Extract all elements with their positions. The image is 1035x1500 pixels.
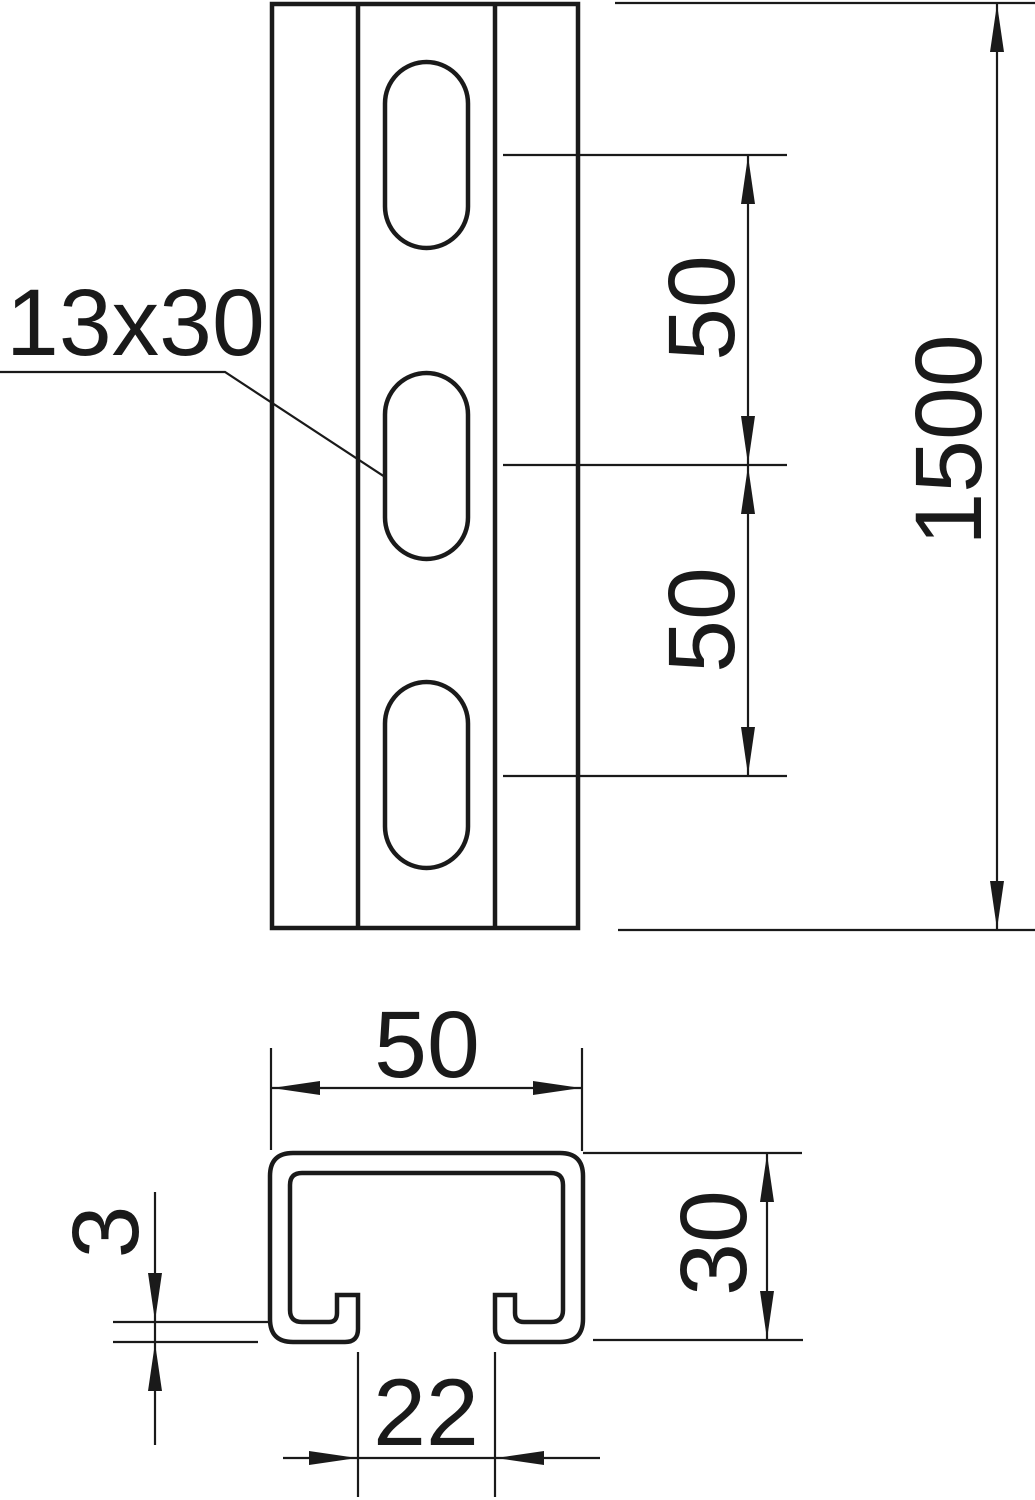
slot-hole-middle (385, 373, 468, 559)
height-label: 30 (661, 1190, 767, 1296)
arrowhead-down-icon (741, 727, 755, 775)
arrowhead-up-icon (741, 466, 755, 514)
arrowhead-up-icon (741, 156, 755, 204)
front-view: 13x30 50 50 1500 (0, 3, 1035, 930)
arrowhead-right-icon (533, 1081, 581, 1095)
arrowhead-left-icon (496, 1451, 544, 1465)
slot-size-label: 13x30 (6, 270, 265, 376)
slot-hole-bottom (385, 682, 468, 868)
arrowhead-right-icon (309, 1451, 357, 1465)
thickness-label: 3 (53, 1206, 159, 1259)
hole-pitch-lower-label: 50 (649, 567, 755, 673)
leader-line (0, 372, 385, 477)
section-view: 50 30 3 22 (53, 992, 803, 1497)
slot-hole-top (385, 62, 468, 248)
width-label: 50 (374, 992, 480, 1098)
opening-label: 22 (373, 1360, 479, 1466)
total-length-label: 1500 (896, 334, 1002, 545)
arrowhead-up-icon (990, 4, 1004, 52)
arrowhead-down-icon (990, 881, 1004, 929)
arrowhead-down-icon (760, 1291, 774, 1339)
technical-drawing: 13x30 50 50 1500 50 3 (0, 0, 1035, 1500)
drawing-canvas: 13x30 50 50 1500 50 3 (0, 0, 1035, 1500)
arrowhead-down-icon (148, 1273, 162, 1321)
c-profile-outline (270, 1153, 583, 1342)
arrowhead-left-icon (272, 1081, 320, 1095)
hole-pitch-upper-label: 50 (649, 255, 755, 361)
arrowhead-up-icon (148, 1343, 162, 1391)
arrowhead-down-icon (741, 416, 755, 464)
